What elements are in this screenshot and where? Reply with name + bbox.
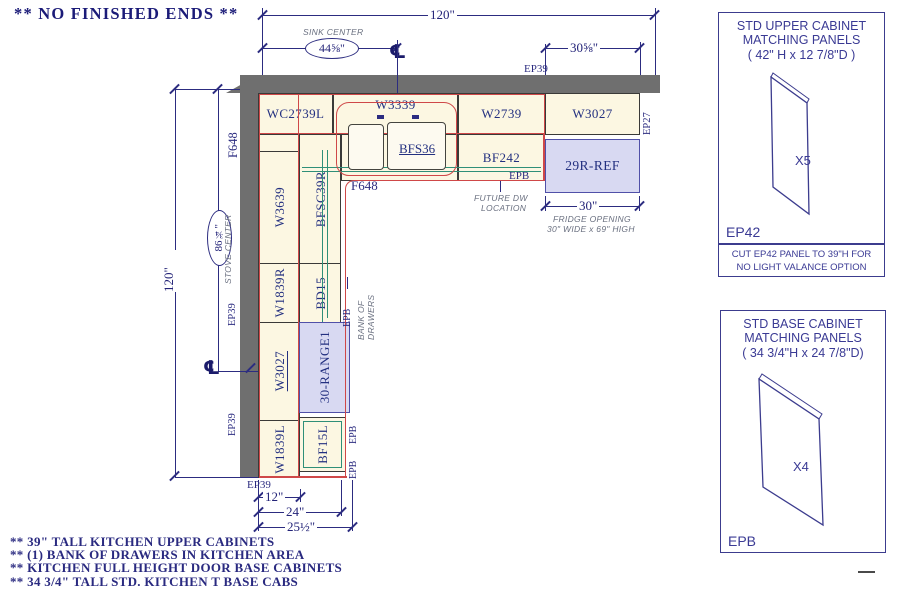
filler-f648-corner-label: F648: [351, 178, 378, 194]
cabinet-label: BF242: [483, 150, 520, 166]
panel-upper-title: STD UPPER CABINET MATCHING PANELS ( 42" …: [719, 13, 884, 62]
countertop-edge-right: [543, 134, 545, 181]
edge-label-epb-bf15l: EPB: [349, 447, 359, 479]
dim-label-top-120: 120": [428, 7, 457, 23]
edge-label-epb-corner: EPB: [343, 291, 353, 327]
centerline-symbol-left: ℄: [203, 357, 220, 379]
edge-label-epb-range: EPB: [349, 412, 359, 444]
cabinet-label: WC2739L: [267, 106, 325, 122]
dim-label-upper-right: 30⅝": [568, 40, 600, 56]
panel-upper-title-line3: ( 42" H x 12 7/8"D ): [719, 48, 884, 62]
annotation-future-dw-line2: LOCATION: [481, 203, 526, 213]
panel-upper-note-line1: CUT EP42 PANEL TO 39"H FOR: [719, 249, 884, 262]
annotation-stove-center: STOVE CENTER: [224, 196, 233, 284]
cabinet-bf242: BF242: [458, 134, 545, 181]
wall-left: [240, 75, 258, 477]
dim-label-left-120: 120": [160, 250, 177, 292]
edge-label-epb-fridge: EPB: [509, 170, 529, 182]
cabinet-bf15l: BF15L: [299, 417, 346, 472]
cabinet-label: BF15L: [316, 425, 329, 464]
cabinet-label: BFSC39R: [314, 171, 327, 227]
cabinet-bd15: BD15: [299, 263, 341, 323]
ext-line: [640, 42, 641, 75]
backsplash-line-v2: [327, 150, 328, 318]
cabinet-w3027-left: W3027: [258, 322, 300, 421]
wall-top: [240, 75, 660, 93]
cabinet-label: W2739: [481, 106, 521, 122]
panel-upper-title-line1: STD UPPER CABINET: [719, 19, 884, 33]
countertop-edge-bottom: [259, 476, 347, 478]
panel-upper-code: EP42: [726, 224, 760, 240]
dim-label-24: 24": [284, 504, 306, 520]
panel-base-title-line3: ( 34 3/4"H x 24 7/8"D): [721, 346, 885, 360]
cabinet-label: 29R-REF: [565, 158, 620, 174]
cabinet-bfsc39r: BFSC39R: [299, 134, 341, 264]
annotation-fridge-opening-line1: FRIDGE OPENING: [553, 214, 631, 224]
panel-upper-qty: X5: [795, 153, 811, 168]
annotation-sink-center: SINK CENTER: [303, 27, 363, 37]
stove-centerline-leader: [218, 371, 258, 372]
cabinet-wc2739l: WC2739L: [258, 93, 333, 135]
panel-base-code: EPB: [728, 533, 756, 549]
edge-label-ep39-top: EP39: [524, 63, 548, 75]
annotation-future-dw-line1: FUTURE DW: [474, 193, 528, 203]
edge-label-ep39-left-upper: EP39: [228, 286, 239, 326]
notes-line-4: ** 34 3/4" TALL STD. KITCHEN T BASE CABS: [10, 575, 342, 588]
dim-line-top-120: [262, 15, 655, 16]
wall-corner-miter: [226, 75, 258, 93]
drawing-title: ** NO FINISHED ENDS **: [14, 4, 238, 24]
cabinet-label: W3027: [572, 106, 612, 122]
ext-line: [262, 8, 263, 75]
panel-base-qty: X4: [793, 459, 809, 474]
page-dash: [858, 571, 875, 573]
panel-base-title-line1: STD BASE CABINET: [721, 317, 885, 331]
faucet-mark-right: [412, 115, 419, 119]
panel-base-cabinet-card: STD BASE CABINET MATCHING PANELS ( 34 3/…: [720, 310, 886, 553]
edge-label-ep39-left-lower: EP39: [228, 396, 239, 436]
notes-line-3: ** KITCHEN FULL HEIGHT DOOR BASE CABINET…: [10, 561, 342, 574]
cabinet-w1839r: W1839R: [258, 263, 300, 323]
notes-block: ** 39" TALL KITCHEN UPPER CABINETS ** (1…: [10, 535, 342, 588]
cabinet-label: W3027: [273, 351, 286, 391]
cabinet-label: W1839L: [273, 425, 286, 474]
range-box: 30-RANGE1: [299, 322, 350, 413]
cabinet-w1839l: W1839L: [258, 420, 300, 478]
cabinet-label: W1839R: [273, 268, 286, 317]
cabinet-w2739: W2739: [458, 93, 545, 135]
panel-upper-cabinet-card: STD UPPER CABINET MATCHING PANELS ( 42" …: [718, 12, 885, 244]
cabinet-w3027-upper: W3027: [545, 93, 640, 135]
dim-label-sink-center: 44⅝": [319, 41, 345, 56]
cabinet-corner-return: [258, 134, 300, 152]
annotation-bank-of-drawers-line1: BANK OF: [357, 280, 366, 340]
annotation-fridge-opening-line2: 30" WIDE x 69" HIGH: [547, 224, 635, 234]
kitchen-plan-canvas: ** NO FINISHED ENDS ** WC2739L W3339 W27…: [0, 0, 900, 591]
ext-line: [655, 8, 656, 75]
dim-label-12: 12": [263, 489, 285, 505]
dim-balloon-sink-center: 44⅝": [305, 38, 359, 59]
sink-bowl-left: [348, 124, 384, 170]
cabinet-w3639: W3639: [258, 151, 300, 264]
faucet-mark-left: [377, 115, 384, 119]
refrigerator-box: 29R-REF: [545, 139, 640, 193]
ext-line: [175, 477, 258, 478]
backsplash-line-v1: [322, 150, 323, 322]
ext-line: [175, 89, 240, 90]
panel-upper-drawing: [747, 69, 859, 219]
dim-label-25: 25½": [285, 519, 317, 535]
panel-base-title: STD BASE CABINET MATCHING PANELS ( 34 3/…: [721, 311, 885, 360]
panel-upper-title-line2: MATCHING PANELS: [719, 33, 884, 47]
dim-label-fridge-30: 30": [577, 198, 599, 214]
bank-of-drawers-leader: [347, 277, 348, 289]
panel-upper-note: CUT EP42 PANEL TO 39"H FOR NO LIGHT VALA…: [718, 244, 885, 277]
panel-upper-note-line2: NO LIGHT VALANCE OPTION: [719, 262, 884, 275]
filler-f648-wall-label: F648: [227, 112, 240, 158]
cabinet-label: BD15: [314, 277, 327, 310]
cabinet-label: W3639: [273, 187, 286, 227]
edge-label-ep27: EP27: [643, 97, 654, 135]
panel-base-drawing: [743, 369, 863, 531]
cabinet-label: 30-RANGE1: [318, 331, 331, 403]
panel-base-title-line2: MATCHING PANELS: [721, 331, 885, 345]
centerline-extension: [397, 40, 398, 93]
future-dw-leader: [500, 181, 501, 192]
annotation-bank-of-drawers-line2: DRAWERS: [367, 280, 376, 340]
sink-cabinet-label: BFS36: [399, 141, 435, 157]
